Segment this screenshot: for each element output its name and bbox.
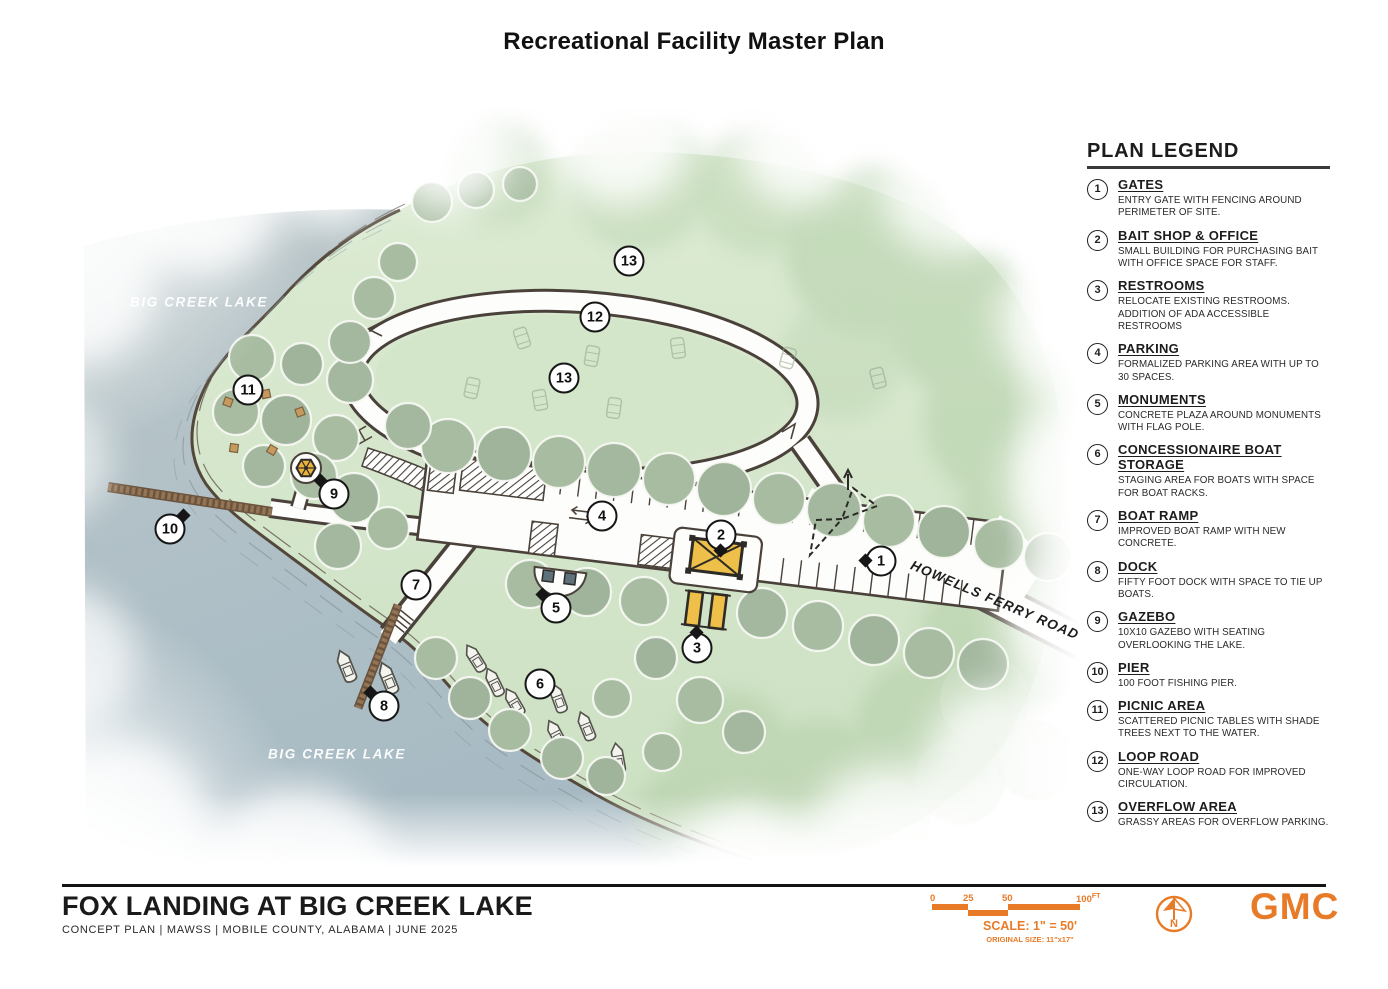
legend-item-number: 11 (1087, 700, 1108, 721)
legend-item-desc: IMPROVED BOAT RAMP WITH NEW CONCRETE. (1118, 526, 1330, 551)
legend-item-number: 1 (1087, 179, 1108, 200)
legend-item: 11PICNIC AREASCATTERED PICNIC TABLES WIT… (1087, 699, 1330, 741)
site-plan-area: 1234567891011121313BIG CREEK LAKEBIG CRE… (0, 60, 1080, 875)
legend-items: 1GATESENTRY GATE WITH FENCING AROUND PER… (1087, 178, 1330, 830)
legend-item-title: GAZEBO (1118, 610, 1330, 625)
plan-marker-5: 5 (541, 593, 572, 624)
plan-marker-2: 2 (706, 520, 737, 551)
legend-item-number: 8 (1087, 561, 1108, 582)
plan-marker-11: 11 (233, 375, 264, 406)
legend-item-title: PIER (1118, 661, 1330, 676)
legend-item: 12LOOP ROADONE-WAY LOOP ROAD FOR IMPROVE… (1087, 750, 1330, 792)
legend-item-desc: STAGING AREA FOR BOATS WITH SPACE FOR BO… (1118, 475, 1330, 500)
legend-item-desc: FORMALIZED PARKING AREA WITH UP TO 30 SP… (1118, 359, 1330, 384)
legend-item: 13OVERFLOW AREAGRASSY AREAS FOR OVERFLOW… (1087, 800, 1330, 829)
scale-bar-segment (932, 904, 968, 910)
legend-item-number: 6 (1087, 444, 1108, 465)
legend-title: PLAN LEGEND (1087, 140, 1330, 169)
marker-pointer (858, 553, 872, 567)
legend-item-number: 10 (1087, 662, 1108, 683)
plan-marker-1: 1 (866, 546, 897, 577)
legend-item-title: MONUMENTS (1118, 393, 1330, 408)
scale-original-size: ORIGINAL SIZE: 11"x17" (950, 935, 1110, 944)
legend-item: 8DOCKFIFTY FOOT DOCK WITH SPACE TO TIE U… (1087, 560, 1330, 602)
legend-item-title: BAIT SHOP & OFFICE (1118, 229, 1330, 244)
plan-marker-4: 4 (587, 501, 618, 532)
legend-item: 5MONUMENTSCONCRETE PLAZA AROUND MONUMENT… (1087, 393, 1330, 435)
legend-item: 7BOAT RAMPIMPROVED BOAT RAMP WITH NEW CO… (1087, 509, 1330, 551)
legend-item-desc: FIFTY FOOT DOCK WITH SPACE TO TIE UP BOA… (1118, 577, 1330, 602)
scale-unit: FT (1092, 893, 1101, 900)
marker-pointer (713, 543, 727, 557)
legend-item: 4PARKINGFORMALIZED PARKING AREA WITH UP … (1087, 342, 1330, 384)
legend-item: 2BAIT SHOP & OFFICESMALL BUILDING FOR PU… (1087, 229, 1330, 271)
legend-item-number: 5 (1087, 394, 1108, 415)
legend-item-title: RESTROOMS (1118, 279, 1330, 294)
plan-marker-13: 13 (614, 246, 645, 277)
marker-pointer (363, 685, 377, 699)
legend-item-desc: ONE-WAY LOOP ROAD FOR IMPROVED CIRCULATI… (1118, 767, 1330, 792)
legend-item-desc: GRASSY AREAS FOR OVERFLOW PARKING. (1118, 817, 1330, 829)
legend-item: 6CONCESSIONAIRE BOAT STORAGESTAGING AREA… (1087, 443, 1330, 500)
legend-item: 1GATESENTRY GATE WITH FENCING AROUND PER… (1087, 178, 1330, 220)
scale-tick: 25 (963, 893, 974, 904)
legend-item-desc: SCATTERED PICNIC TABLES WITH SHADE TREES… (1118, 716, 1330, 741)
plan-annotations: 1234567891011121313BIG CREEK LAKEBIG CRE… (0, 60, 1080, 875)
legend-item-desc: RELOCATE EXISTING RESTROOMS. ADDITION OF… (1118, 296, 1330, 333)
project-meta: CONCEPT PLAN | MAWSS | MOBILE COUNTY, AL… (62, 924, 1326, 936)
gmc-logo: GMC (1250, 886, 1339, 928)
road-label: HOWELLS FERRY ROAD (908, 558, 1081, 643)
project-title: FOX LANDING AT BIG CREEK LAKE (62, 891, 1326, 922)
scale-bar-segment (1008, 904, 1080, 910)
scale-tick: 50 (1002, 893, 1013, 904)
legend-item-title: PARKING (1118, 342, 1330, 357)
water-label: BIG CREEK LAKE (268, 747, 406, 762)
scale-bar-segment (968, 910, 1008, 916)
legend-item-title: PICNIC AREA (1118, 699, 1330, 714)
legend-item-desc: ENTRY GATE WITH FENCING AROUND PERIMETER… (1118, 195, 1330, 220)
legend-item: 10PIER100 FOOT FISHING PIER. (1087, 661, 1330, 690)
plan-marker-13: 13 (549, 363, 580, 394)
legend-item-number: 12 (1087, 751, 1108, 772)
plan-marker-10: 10 (155, 514, 186, 545)
legend-item-title: LOOP ROAD (1118, 750, 1330, 765)
plan-marker-9: 9 (319, 479, 350, 510)
plan-marker-3: 3 (682, 633, 713, 664)
legend-item: 9GAZEBO10X10 GAZEBO WITH SEATING OVERLOO… (1087, 610, 1330, 652)
marker-pointer (689, 625, 703, 639)
plan-sheet: Recreational Facility Master Plan (0, 0, 1388, 989)
legend-item-title: OVERFLOW AREA (1118, 800, 1330, 815)
plan-marker-8: 8 (369, 691, 400, 722)
legend-item-title: BOAT RAMP (1118, 509, 1330, 524)
title-block: FOX LANDING AT BIG CREEK LAKE CONCEPT PL… (62, 884, 1326, 936)
legend-item-desc: CONCRETE PLAZA AROUND MONUMENTS WITH FLA… (1118, 410, 1330, 435)
legend-item-number: 2 (1087, 230, 1108, 251)
legend-item-number: 4 (1087, 343, 1108, 364)
legend-item-desc: SMALL BUILDING FOR PURCHASING BAIT WITH … (1118, 246, 1330, 271)
page-title: Recreational Facility Master Plan (0, 28, 1388, 56)
legend-item-number: 3 (1087, 280, 1108, 301)
plan-marker-7: 7 (401, 570, 432, 601)
plan-marker-12: 12 (580, 302, 611, 333)
scale-tick: 0 (930, 893, 935, 904)
marker-pointer (535, 587, 549, 601)
legend-item-number: 9 (1087, 611, 1108, 632)
scale-label: SCALE: 1" = 50' (950, 919, 1110, 933)
legend-item-desc: 10X10 GAZEBO WITH SEATING OVERLOOKING TH… (1118, 627, 1330, 652)
legend-item-number: 7 (1087, 510, 1108, 531)
marker-pointer (176, 508, 190, 522)
legend-item-title: CONCESSIONAIRE BOAT STORAGE (1118, 443, 1330, 473)
plan-marker-6: 6 (525, 669, 556, 700)
legend-item-title: GATES (1118, 178, 1330, 193)
legend-item-number: 13 (1087, 801, 1108, 822)
water-label: BIG CREEK LAKE (130, 295, 268, 310)
legend-item-title: DOCK (1118, 560, 1330, 575)
north-letter: N (1170, 918, 1178, 930)
legend-item-desc: 100 FOOT FISHING PIER. (1118, 678, 1330, 690)
marker-pointer (313, 473, 327, 487)
legend-item: 3RESTROOMSRELOCATE EXISTING RESTROOMS. A… (1087, 279, 1330, 333)
north-arrow-icon: N (1152, 890, 1196, 936)
plan-legend: PLAN LEGEND 1GATESENTRY GATE WITH FENCIN… (1087, 140, 1330, 839)
